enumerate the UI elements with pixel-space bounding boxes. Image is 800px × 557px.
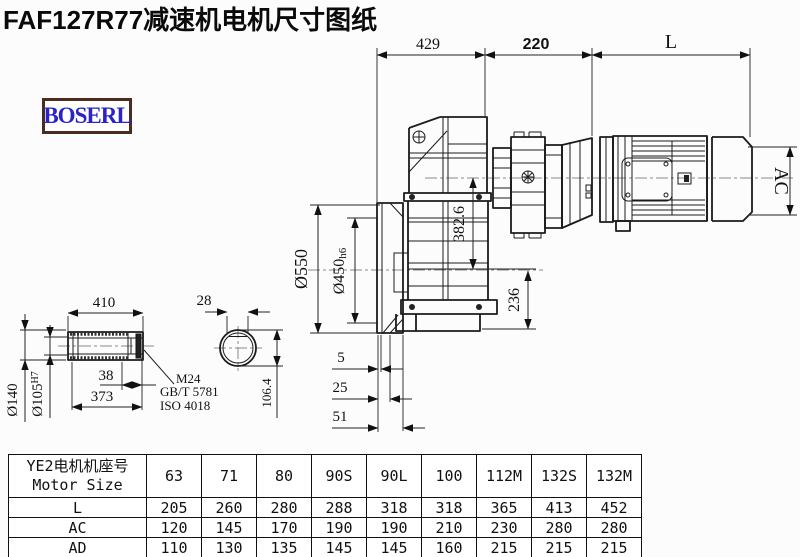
dim-spigot-label: Ø450h6: [331, 247, 349, 294]
cell-AC-132M: 280: [587, 518, 642, 538]
cell-AD-90L: 145: [367, 538, 422, 557]
table-col-132M: 132M: [587, 455, 642, 498]
cell-L-71: 260: [202, 498, 257, 518]
dim-25-label: 25: [333, 380, 348, 396]
cell-AD-80: 135: [257, 538, 312, 557]
table-col-90S: 90S: [312, 455, 367, 498]
row-label-AC: AC: [9, 518, 147, 538]
dim-38-label: 38: [99, 368, 114, 384]
note-std1-label: GB/T 5781: [160, 384, 219, 399]
dim-220-label: 220: [523, 36, 550, 53]
dim-28-label: 28: [197, 293, 212, 309]
note-std2-label: ISO 4018: [160, 398, 210, 413]
output-flange: [377, 203, 403, 333]
table-row-L: L205260280288318318365413452: [9, 498, 642, 518]
table-col-80: 80: [257, 455, 312, 498]
motor-size-table: YE2电机机座号Motor Size63718090S90L100112M132…: [8, 454, 642, 557]
dim-105-label: Ø105H7: [30, 371, 46, 417]
cell-L-100: 318: [422, 498, 477, 518]
cell-AC-63: 120: [147, 518, 202, 538]
cell-AC-71: 145: [202, 518, 257, 538]
table-row-AD: AD110130135145145160215215215: [9, 538, 642, 557]
table-col-100: 100: [422, 455, 477, 498]
table-col-112M: 112M: [477, 455, 532, 498]
table-col-90L: 90L: [367, 455, 422, 498]
cell-AD-90S: 145: [312, 538, 367, 557]
cell-L-132M: 452: [587, 498, 642, 518]
dim-236-label: 236: [506, 288, 523, 312]
dim-51-label: 51: [333, 409, 348, 425]
table-col-63: 63: [147, 455, 202, 498]
table-row-AC: AC120145170190190210230280280: [9, 518, 642, 538]
row-label-AD: AD: [9, 538, 147, 557]
dim-5-label: 5: [337, 350, 345, 366]
cell-L-63: 205: [147, 498, 202, 518]
table-col-132S: 132S: [532, 455, 587, 498]
cell-AC-90L: 190: [367, 518, 422, 538]
motor: [600, 136, 752, 231]
cell-L-112M: 365: [477, 498, 532, 518]
row-label-L: L: [9, 498, 147, 518]
dim-373-label: 373: [91, 389, 114, 405]
cell-AC-100: 210: [422, 518, 477, 538]
cell-L-90L: 318: [367, 498, 422, 518]
cell-AC-80: 170: [257, 518, 312, 538]
cell-AD-112M: 215: [477, 538, 532, 557]
table-header-cn: YE2电机机座号: [9, 457, 146, 476]
dim-106-label: 106.4: [259, 378, 274, 408]
cell-L-132S: 413: [532, 498, 587, 518]
dim-flange-od-label: Ø550: [291, 249, 311, 289]
cell-L-80: 280: [257, 498, 312, 518]
table-header-label: YE2电机机座号Motor Size: [9, 455, 147, 498]
cell-AD-132M: 215: [587, 538, 642, 557]
cell-AD-100: 160: [422, 538, 477, 557]
dimension-drawing: 429 220 L AC Ø550 Ø450h6 382.6 236 5 25 …: [0, 0, 800, 455]
dimension-labels: 429 220 L AC Ø550 Ø450h6 382.6 236 5 25 …: [5, 31, 792, 425]
cell-AC-132S: 280: [532, 518, 587, 538]
cell-L-90S: 288: [312, 498, 367, 518]
center-lines: [58, 178, 793, 371]
drawing-sheet: FAF127R77减速机电机尺寸图纸 BOSERL: [0, 0, 800, 557]
cell-AC-112M: 230: [477, 518, 532, 538]
table-header-row: YE2电机机座号Motor Size63718090S90L100112M132…: [9, 455, 642, 498]
input-adapter: [493, 132, 592, 238]
gearbox-housing: [383, 117, 497, 333]
dim-140-label: Ø140: [5, 383, 21, 416]
cell-AC-90S: 190: [312, 518, 367, 538]
cell-AD-132S: 215: [532, 538, 587, 557]
dim-L-label: L: [665, 31, 677, 53]
table-header-en: Motor Size: [9, 476, 146, 495]
cell-AD-71: 130: [202, 538, 257, 557]
dim-382-label: 382.6: [451, 206, 468, 242]
table-col-71: 71: [202, 455, 257, 498]
dim-429-label: 429: [416, 36, 440, 53]
cell-AD-63: 110: [147, 538, 202, 557]
dim-AC-label: AC: [770, 167, 792, 195]
dim-410-label: 410: [93, 295, 116, 311]
